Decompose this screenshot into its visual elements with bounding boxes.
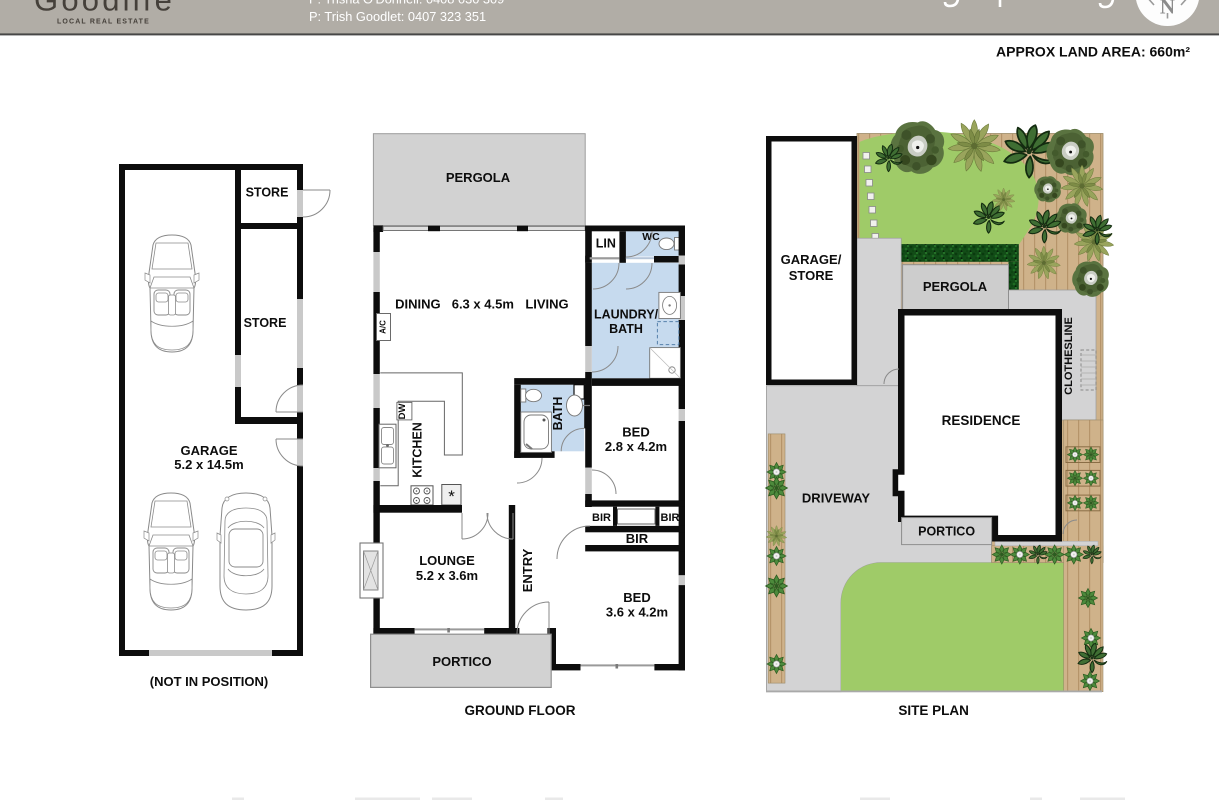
svg-text:STORE: STORE xyxy=(244,316,287,330)
svg-text:DRIVEWAY: DRIVEWAY xyxy=(802,491,870,506)
svg-text:GARAGE: GARAGE xyxy=(180,443,237,458)
svg-text:DW: DW xyxy=(397,404,408,420)
svg-text:3.6 x 4.2m: 3.6 x 4.2m xyxy=(606,605,668,620)
svg-text:6.3 x 4.5m: 6.3 x 4.5m xyxy=(452,297,514,312)
svg-text:BIR: BIR xyxy=(661,512,680,524)
svg-text:5.2 x 14.5m: 5.2 x 14.5m xyxy=(174,457,243,472)
svg-text:PORTICO: PORTICO xyxy=(432,654,491,669)
svg-text:5.2 x 3.6m: 5.2 x 3.6m xyxy=(416,568,478,583)
svg-text:PERGOLA: PERGOLA xyxy=(446,170,511,185)
svg-text:BATH: BATH xyxy=(609,322,643,336)
svg-text:LOCAL REAL ESTATE: LOCAL REAL ESTATE xyxy=(57,19,150,26)
svg-text:Goodlife: Goodlife xyxy=(34,0,175,18)
svg-text:PERGOLA: PERGOLA xyxy=(923,279,988,294)
svg-text:PORTICO: PORTICO xyxy=(918,525,975,539)
svg-text:BIR: BIR xyxy=(626,531,649,546)
svg-text:DINING: DINING xyxy=(395,297,441,312)
svg-text:CLOTHESLINE: CLOTHESLINE xyxy=(1063,317,1075,395)
svg-text:LIVING: LIVING xyxy=(525,297,568,312)
svg-text:2.8 x 4.2m: 2.8 x 4.2m xyxy=(605,439,667,454)
svg-text:BIR: BIR xyxy=(592,512,611,524)
svg-text:BATH: BATH xyxy=(551,397,565,431)
svg-text:P: Trisha O'Donnell: 0408 030: P: Trisha O'Donnell: 0408 030 309 xyxy=(309,0,504,7)
svg-text:GROUND FLOOR: GROUND FLOOR xyxy=(465,703,576,718)
svg-text:LAUNDRY/: LAUNDRY/ xyxy=(594,308,659,322)
svg-text:P: Trish Goodlet: 0407 323 351: P: Trish Goodlet: 0407 323 351 xyxy=(309,9,486,24)
svg-text:BED: BED xyxy=(623,590,650,605)
svg-text:*: * xyxy=(448,487,455,506)
svg-text:STORE: STORE xyxy=(789,268,834,283)
svg-text:ENTRY: ENTRY xyxy=(520,548,535,592)
svg-text:BED: BED xyxy=(622,425,649,440)
svg-text:LIN: LIN xyxy=(596,237,616,251)
svg-text:KITCHEN: KITCHEN xyxy=(411,422,425,478)
svg-text:STORE: STORE xyxy=(246,186,289,200)
svg-text:A/C: A/C xyxy=(379,320,388,334)
svg-text:APPROX LAND AREA: 660m²: APPROX LAND AREA: 660m² xyxy=(996,44,1190,60)
svg-text:(NOT IN POSITION): (NOT IN POSITION) xyxy=(150,674,268,689)
svg-text:LOUNGE: LOUNGE xyxy=(419,553,475,568)
svg-text:SITE PLAN: SITE PLAN xyxy=(898,703,969,718)
svg-text:GARAGE/: GARAGE/ xyxy=(781,252,842,267)
svg-text:RESIDENCE: RESIDENCE xyxy=(942,413,1021,428)
